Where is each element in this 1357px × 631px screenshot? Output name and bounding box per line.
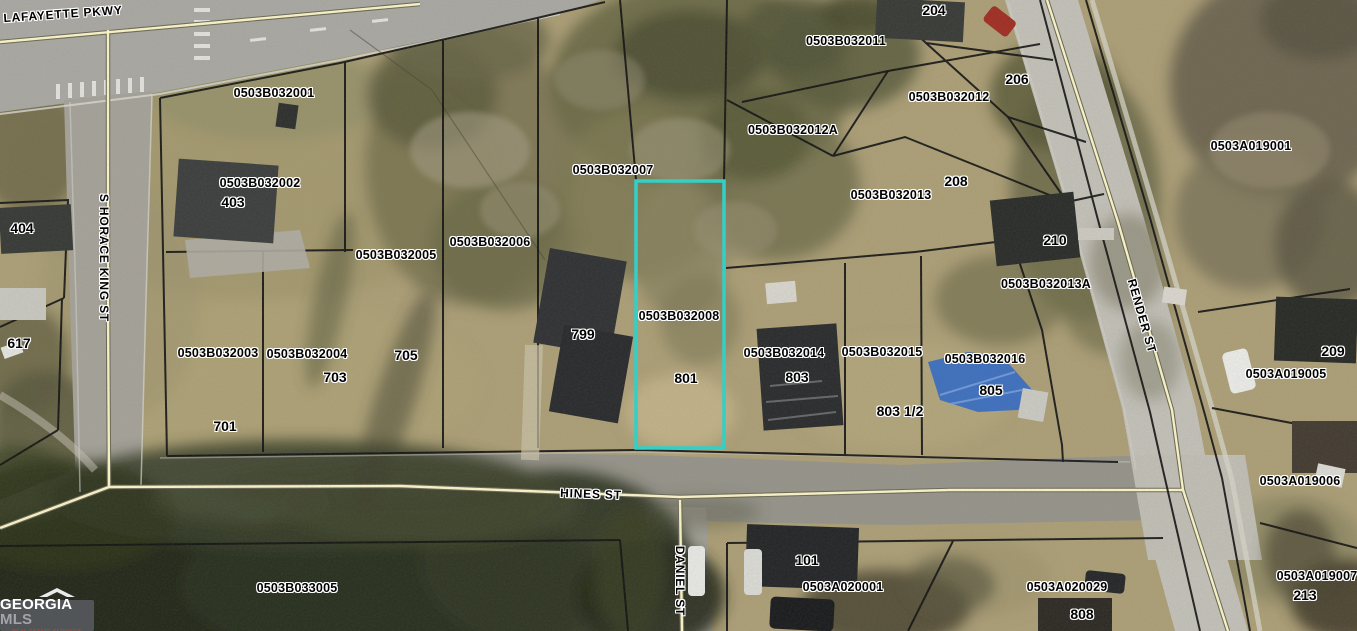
parcel-label-0503b033005[interactable]: 0503B033005 [257,581,338,595]
parcel-label-0503a019006[interactable]: 0503A019006 [1260,474,1341,488]
roof-icon [38,587,76,598]
address-label-701: 701 [213,418,236,434]
parcel-label-0503a019005[interactable]: 0503A019005 [1246,367,1327,381]
parcel-label-0503b032014[interactable]: 0503B032014 [744,346,825,360]
street-label-hines-st: HINES ST [560,486,622,502]
address-label-803: 803 [785,369,808,385]
address-label-808: 808 [1070,606,1093,622]
address-label-705: 705 [394,347,417,363]
address-label-213: 213 [1293,587,1316,603]
parcel-label-0503b032003[interactable]: 0503B032003 [178,346,259,360]
address-label-210: 210 [1043,232,1066,248]
address-label-805: 805 [979,382,1002,398]
map-viewport[interactable]: LAFAYETTE PKWYS HORACE KING STHINES STDA… [0,0,1357,631]
address-label-703: 703 [323,369,346,385]
street-label-daniel-st: DANIEL ST [673,546,687,616]
address-label-206: 206 [1005,71,1028,87]
parcel-label-0503b032012a[interactable]: 0503B032012A [748,123,838,137]
parcel-label-0503a020029[interactable]: 0503A020029 [1027,580,1108,594]
parcel-label-0503b032013[interactable]: 0503B032013 [851,188,932,202]
parcel-label-0503b032005[interactable]: 0503B032005 [356,248,437,262]
address-label-403: 403 [221,194,244,210]
parcel-label-0503b032013a[interactable]: 0503B032013A [1001,277,1091,291]
parcel-label-0503b032015[interactable]: 0503B032015 [842,345,923,359]
address-label-208: 208 [944,173,967,189]
parcel-label-0503b032006[interactable]: 0503B032006 [450,235,531,249]
brand-mls: MLS [0,611,32,628]
parcel-label-0503a019001[interactable]: 0503A019001 [1211,139,1292,153]
parcel-label-0503b032011[interactable]: 0503B032011 [806,34,886,48]
address-label-801: 801 [674,370,697,386]
parcel-label-0503a020001[interactable]: 0503A020001 [803,580,884,594]
address-label-803-1-2: 803 1/2 [877,403,924,419]
parcel-label-0503b032001[interactable]: 0503B032001 [234,86,315,100]
address-label-617: 617 [7,335,30,351]
address-label-209: 209 [1321,343,1344,359]
parcel-label-0503b032004[interactable]: 0503B032004 [267,347,348,361]
address-label-404: 404 [10,220,33,236]
address-label-799: 799 [571,326,594,342]
parcel-label-0503a019007[interactable]: 0503A019007 [1277,569,1357,583]
georgiamls-logo: GEORGIA MLS REAL ESTATE SERVICES [0,600,94,631]
parcel-label-0503b032002[interactable]: 0503B032002 [220,176,301,190]
parcel-label-0503b032007[interactable]: 0503B032007 [573,163,654,177]
address-label-101: 101 [795,552,818,568]
street-label-s-horace-king-st: S HORACE KING ST [97,194,111,322]
parcel-label-0503b032012[interactable]: 0503B032012 [909,90,990,104]
parcel-label-0503b032016[interactable]: 0503B032016 [945,352,1026,366]
georgiamls-brand: GEORGIA MLS [0,597,94,627]
parcel-label-0503b032008[interactable]: 0503B032008 [639,309,720,323]
address-label-204: 204 [922,2,945,18]
